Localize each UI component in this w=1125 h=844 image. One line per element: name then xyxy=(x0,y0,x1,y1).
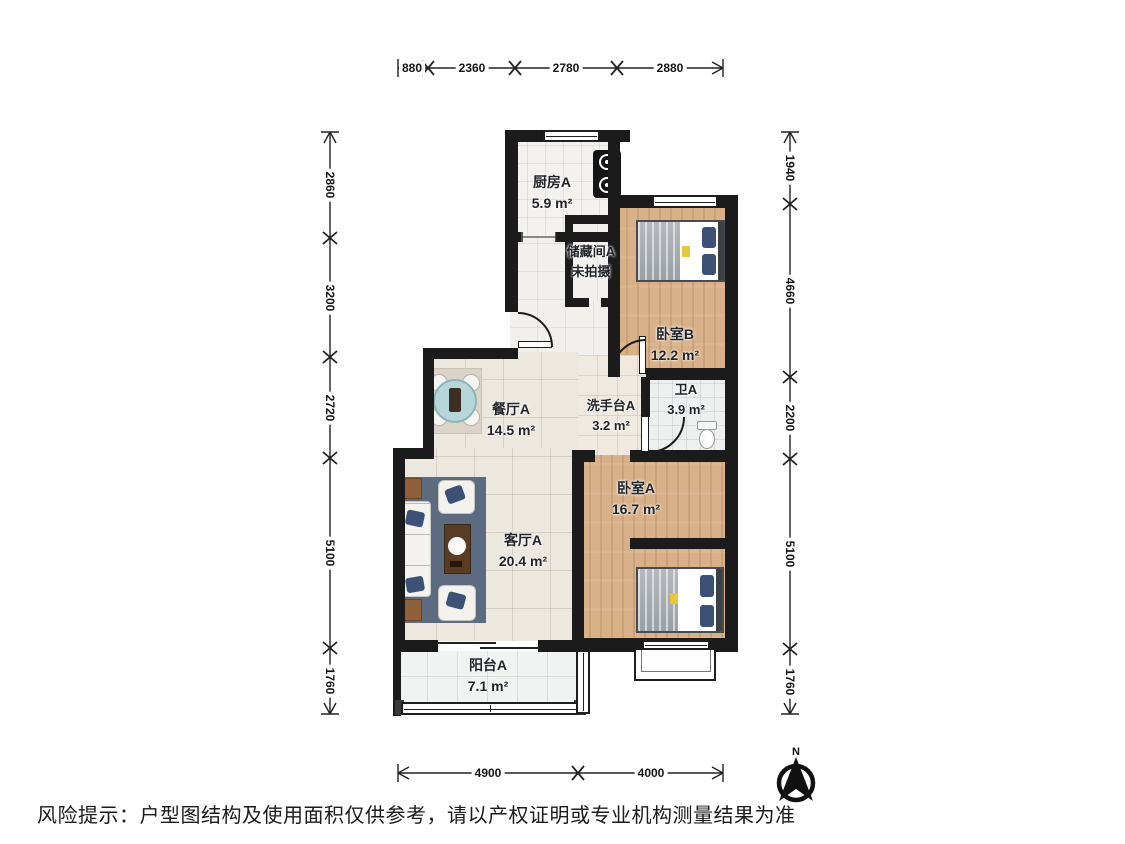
room-area: 20.4 m² xyxy=(499,551,547,572)
dim-top-3: 2780 xyxy=(550,61,583,75)
room-name: 卧室A xyxy=(612,478,660,499)
dim-right-1: 1940 xyxy=(783,152,797,185)
room-name: 厨房A xyxy=(532,172,572,193)
room-name: 洗手台A xyxy=(587,396,635,416)
room-label-living: 客厅A 20.4 m² xyxy=(499,530,547,572)
dim-bottom-2: 4000 xyxy=(635,766,668,780)
room-area: 14.5 m² xyxy=(487,420,535,441)
room-label-bedroom-a: 卧室A 16.7 m² xyxy=(612,478,660,520)
room-area: 16.7 m² xyxy=(612,499,660,520)
room-label-storage: 储藏间A 未拍摄 xyxy=(567,242,615,282)
bathroom-door-arc xyxy=(649,417,684,452)
room-name: 餐厅A xyxy=(487,399,535,420)
plan-linework xyxy=(0,0,1125,844)
dim-top-1: 880 xyxy=(399,61,425,75)
disclaimer-text: 风险提示：户型图结构及使用面积仅供参考，请以产权证明或专业机构测量结果为准 xyxy=(37,799,796,828)
room-area: 3.2 m² xyxy=(587,416,635,436)
room-label-washstand: 洗手台A 3.2 m² xyxy=(587,396,635,436)
compass-north-label: N xyxy=(792,746,800,758)
room-area: 12.2 m² xyxy=(651,345,699,366)
room-name: 储藏间A xyxy=(567,242,615,262)
room-area: 5.9 m² xyxy=(532,193,572,214)
room-name: 阳台A xyxy=(468,655,508,676)
entry-door-arc xyxy=(518,313,552,347)
compass-icon xyxy=(779,757,813,801)
room-name: 客厅A xyxy=(499,530,547,551)
dim-top-2: 2360 xyxy=(456,61,489,75)
room-name: 卧室B xyxy=(651,324,699,345)
room-label-balcony: 阳台A 7.1 m² xyxy=(468,655,508,697)
room-label-bedroom-b: 卧室B 12.2 m² xyxy=(651,324,699,366)
dim-right-5: 1760 xyxy=(783,666,797,699)
room-label-dining: 餐厅A 14.5 m² xyxy=(487,399,535,441)
dim-right-4: 5100 xyxy=(783,538,797,571)
room-label-kitchen: 厨房A 5.9 m² xyxy=(532,172,572,214)
dim-left-3: 2720 xyxy=(323,392,337,425)
room-area: 3.9 m² xyxy=(667,400,705,420)
dim-top-4: 2880 xyxy=(654,61,687,75)
dim-left-1: 2860 xyxy=(323,169,337,202)
dim-bottom-1: 4900 xyxy=(472,766,505,780)
kitchen-opening xyxy=(522,232,556,242)
dim-left-5: 1760 xyxy=(323,665,337,698)
room-name: 卫A xyxy=(667,380,705,400)
bedroom-b-door-arc xyxy=(612,340,646,374)
dimension-line-bottom xyxy=(398,764,723,782)
dim-right-3: 2200 xyxy=(783,402,797,435)
room-area: 未拍摄 xyxy=(567,262,615,282)
dim-left-4: 5100 xyxy=(323,537,337,570)
room-area: 7.1 m² xyxy=(468,676,508,697)
dim-left-2: 3200 xyxy=(323,282,337,315)
dim-right-2: 4660 xyxy=(783,275,797,308)
floorplan-canvas: 厨房A 5.9 m² 储藏间A 未拍摄 卧室B 12.2 m² 餐厅A 14.5… xyxy=(0,0,1125,844)
room-label-bathroom: 卫A 3.9 m² xyxy=(667,380,705,420)
